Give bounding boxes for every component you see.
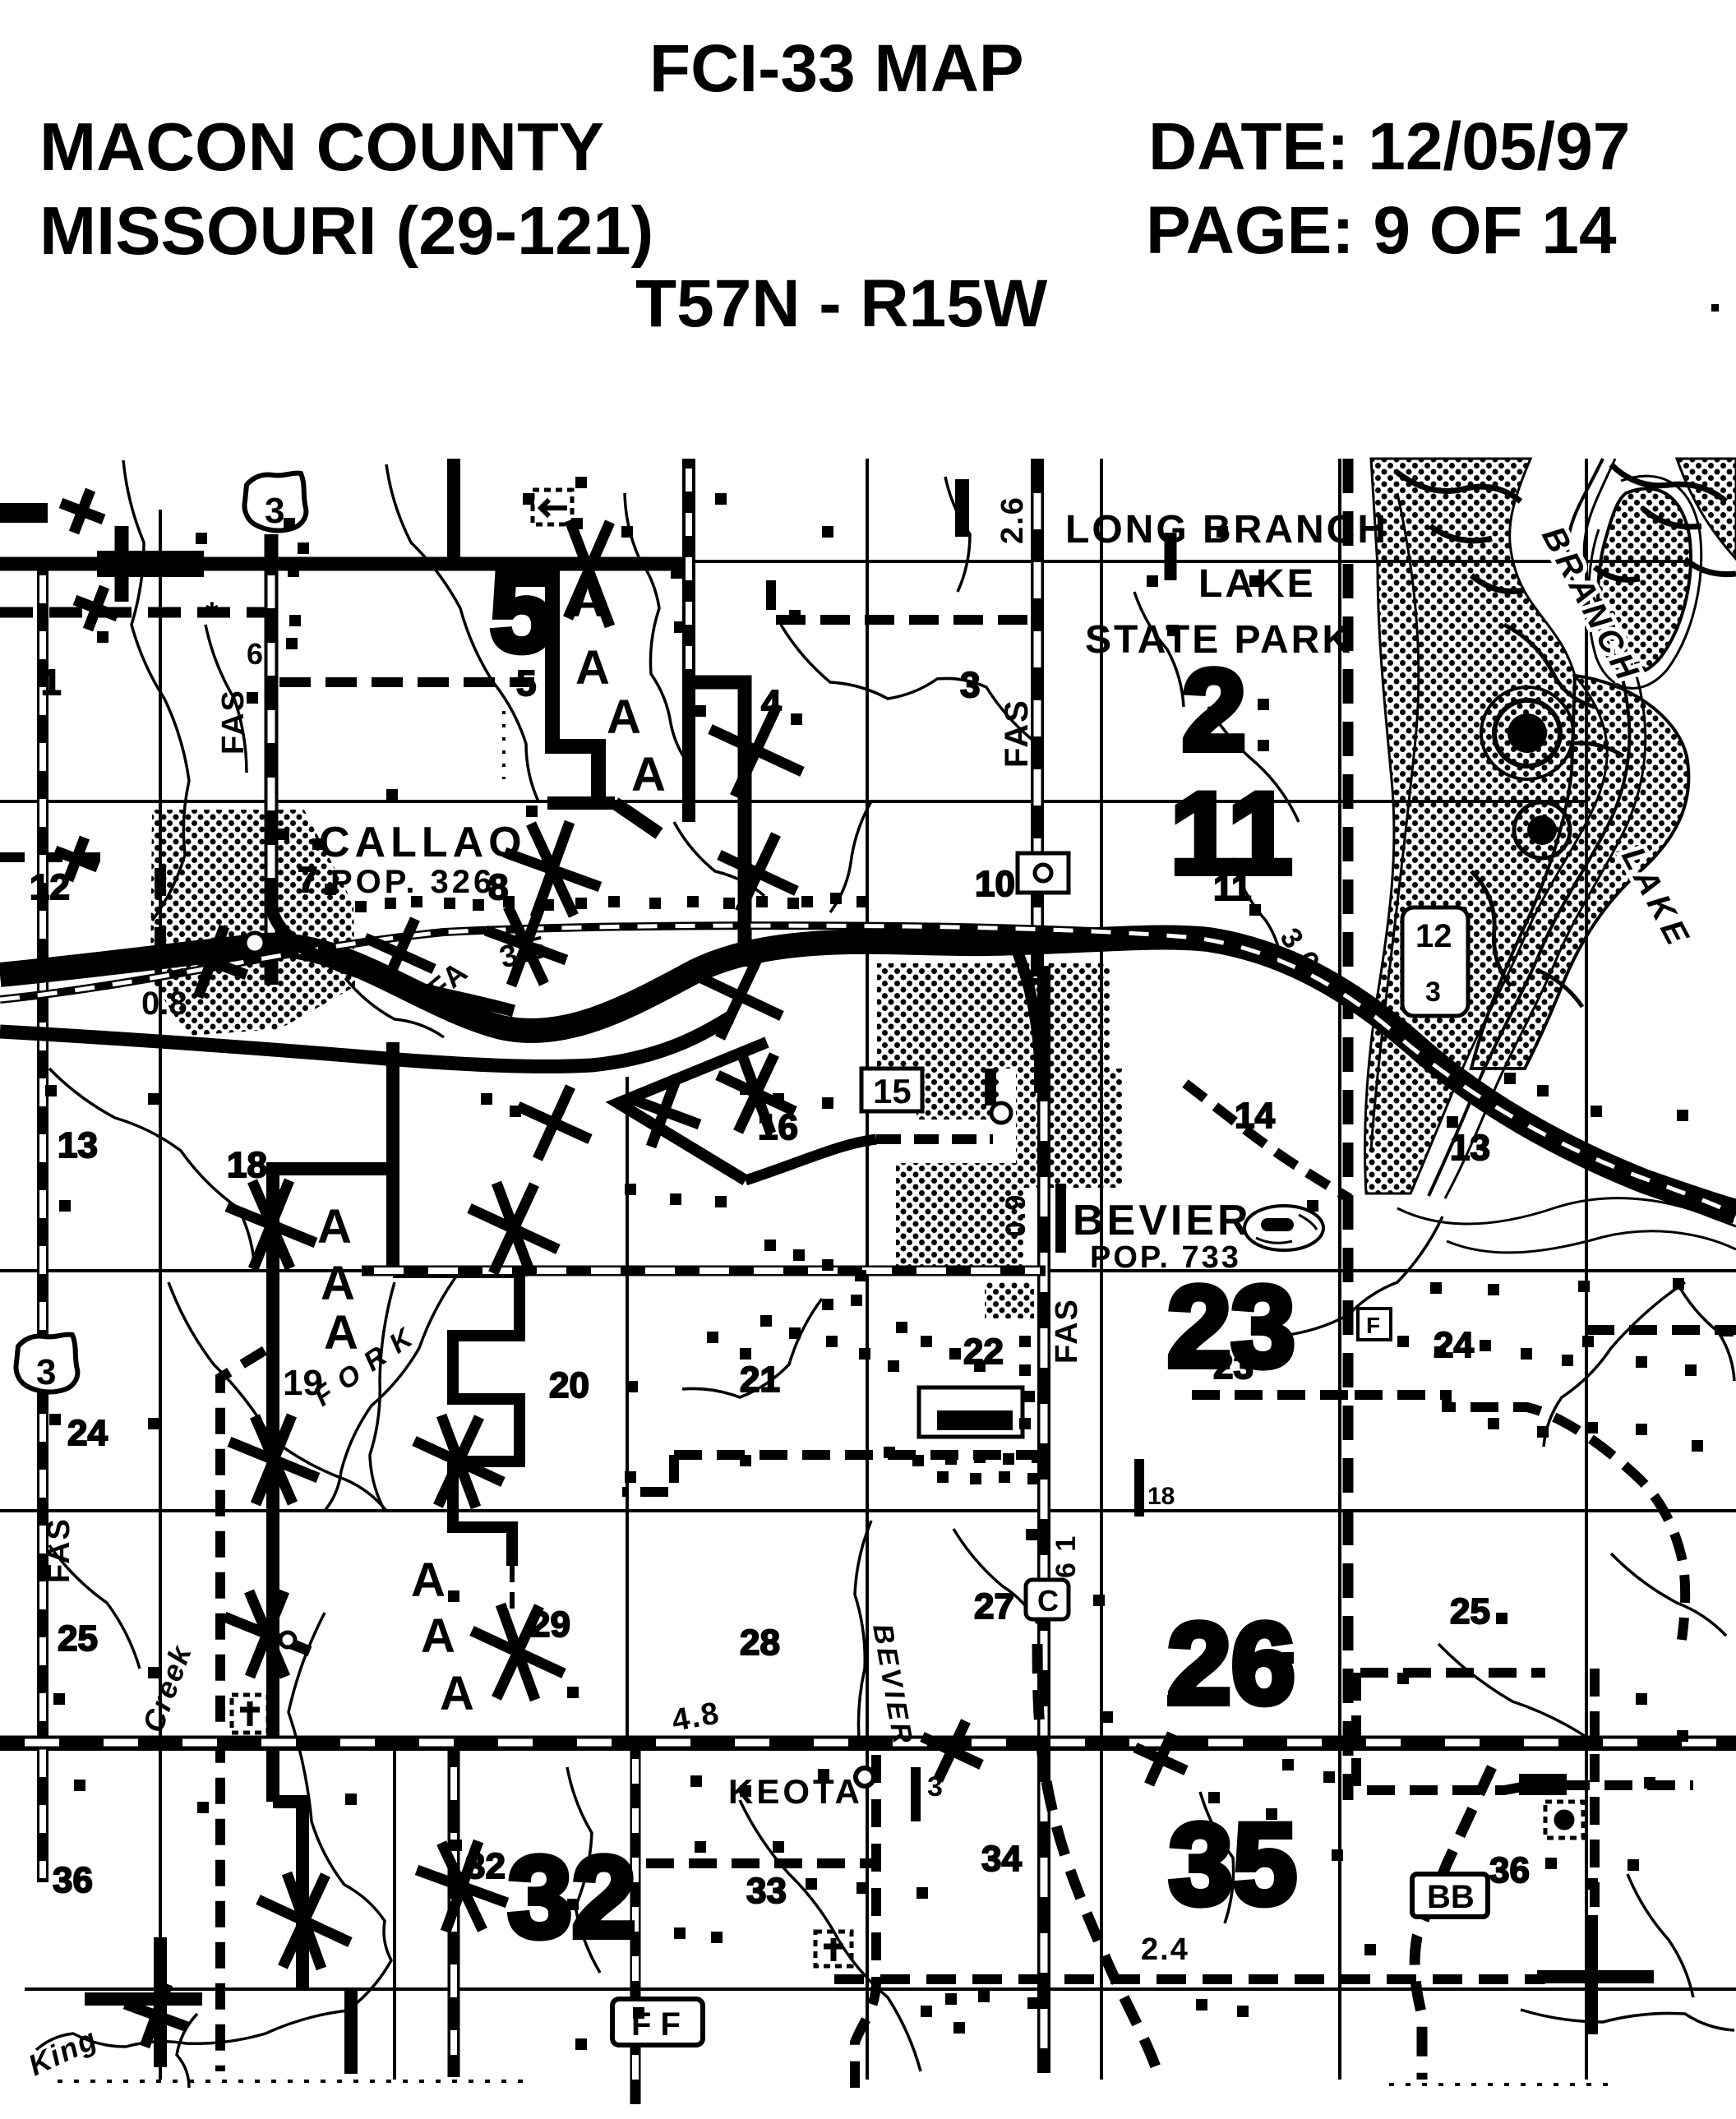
svg-text:FAS: FAS bbox=[42, 1517, 76, 1583]
svg-text:6 1: 6 1 bbox=[1050, 1535, 1082, 1578]
svg-text:23: 23 bbox=[1213, 1346, 1254, 1387]
svg-text:19: 19 bbox=[283, 1363, 323, 1403]
svg-text:0.9: 0.9 bbox=[1000, 1193, 1032, 1237]
svg-text:0.8: 0.8 bbox=[141, 986, 187, 1022]
svg-text:13: 13 bbox=[1450, 1128, 1490, 1168]
svg-text:BEVIER: BEVIER bbox=[1073, 1197, 1252, 1244]
svg-text:A: A bbox=[631, 748, 666, 801]
svg-text:A: A bbox=[421, 1609, 455, 1663]
svg-text:CALLAO: CALLAO bbox=[319, 819, 527, 866]
svg-text:10: 10 bbox=[975, 864, 1015, 904]
svg-text:DATE: 12/05/97: DATE: 12/05/97 bbox=[1148, 109, 1630, 184]
svg-text:BB: BB bbox=[1427, 1879, 1475, 1915]
svg-text:15: 15 bbox=[873, 1072, 912, 1110]
svg-text:32: 32 bbox=[508, 1832, 636, 1961]
svg-text:20: 20 bbox=[549, 1365, 589, 1406]
svg-text:2.6: 2.6 bbox=[995, 496, 1030, 544]
svg-text:24: 24 bbox=[1434, 1325, 1474, 1365]
svg-text:12: 12 bbox=[1415, 918, 1452, 954]
svg-text:33: 33 bbox=[746, 1871, 787, 1911]
svg-text:2: 2 bbox=[1182, 645, 1246, 774]
svg-text:A: A bbox=[317, 1200, 352, 1253]
svg-text:2.4: 2.4 bbox=[1141, 1932, 1189, 1967]
svg-text:4: 4 bbox=[761, 683, 782, 723]
svg-text:13: 13 bbox=[58, 1125, 98, 1166]
svg-text:A: A bbox=[440, 1667, 474, 1720]
svg-text:18: 18 bbox=[1147, 1483, 1175, 1510]
svg-text:3: 3 bbox=[36, 1352, 56, 1392]
svg-text:A: A bbox=[607, 690, 641, 744]
svg-text:C: C bbox=[1037, 1584, 1059, 1618]
svg-text:6: 6 bbox=[247, 637, 263, 671]
svg-text:MISSOURI (29-121): MISSOURI (29-121) bbox=[39, 192, 653, 269]
svg-text:F: F bbox=[1366, 1313, 1380, 1338]
svg-text:FAS: FAS bbox=[216, 689, 251, 755]
svg-text:25: 25 bbox=[58, 1618, 98, 1659]
svg-text:PAGE: 9 OF 14: PAGE: 9 OF 14 bbox=[1146, 193, 1617, 268]
svg-text:11: 11 bbox=[1213, 868, 1252, 908]
svg-text:21: 21 bbox=[740, 1360, 780, 1400]
svg-text:32: 32 bbox=[465, 1846, 506, 1886]
svg-text:12: 12 bbox=[30, 867, 70, 907]
svg-text:5: 5 bbox=[516, 663, 536, 704]
svg-text:27: 27 bbox=[974, 1586, 1014, 1627]
svg-text:MACON COUNTY: MACON COUNTY bbox=[39, 108, 604, 185]
svg-text:34: 34 bbox=[981, 1839, 1022, 1879]
svg-text:5: 5 bbox=[490, 547, 554, 676]
svg-text:25: 25 bbox=[1450, 1591, 1490, 1632]
svg-text:36: 36 bbox=[53, 1860, 93, 1900]
svg-text:1: 1 bbox=[41, 662, 61, 703]
svg-text:28: 28 bbox=[740, 1623, 780, 1663]
svg-text:16: 16 bbox=[758, 1107, 798, 1147]
svg-text:A: A bbox=[324, 1306, 358, 1360]
svg-text:18: 18 bbox=[227, 1145, 267, 1185]
svg-text:7: 7 bbox=[298, 860, 317, 900]
svg-text:26: 26 bbox=[1167, 1599, 1295, 1728]
svg-text:14: 14 bbox=[1235, 1096, 1275, 1136]
svg-text:A: A bbox=[321, 1257, 355, 1310]
svg-text:3: 3 bbox=[960, 665, 980, 705]
svg-text:3: 3 bbox=[927, 1771, 943, 1803]
svg-text:A: A bbox=[411, 1553, 446, 1607]
svg-text:FAS: FAS bbox=[999, 699, 1035, 768]
svg-text:A: A bbox=[570, 574, 605, 627]
svg-text:A: A bbox=[575, 641, 610, 695]
svg-text:35: 35 bbox=[1169, 1799, 1297, 1928]
svg-text:24: 24 bbox=[67, 1413, 108, 1453]
svg-text:3: 3 bbox=[265, 491, 284, 531]
svg-text:FCI-33 MAP: FCI-33 MAP bbox=[649, 31, 1024, 106]
svg-text:3: 3 bbox=[1425, 976, 1441, 1008]
svg-text:T57N - R15W: T57N - R15W bbox=[635, 266, 1048, 341]
svg-text:*: * bbox=[205, 596, 219, 632]
svg-text:29: 29 bbox=[530, 1604, 570, 1645]
svg-text:36: 36 bbox=[1489, 1850, 1530, 1890]
svg-text:POP. 326: POP. 326 bbox=[330, 864, 495, 900]
svg-text:FAS: FAS bbox=[1050, 1298, 1084, 1364]
